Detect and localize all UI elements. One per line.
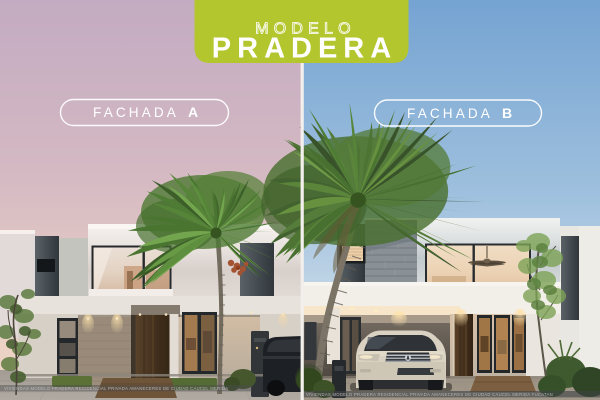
svg-text:FACHADA: FACHADA	[407, 106, 493, 121]
svg-text:B: B	[502, 105, 512, 121]
svg-text:FACHADA: FACHADA	[93, 105, 179, 120]
svg-text:PRADERA: PRADERA	[212, 33, 397, 65]
svg-text:VIVIENDAS MODELO PRADERA RESID: VIVIENDAS MODELO PRADERA RESIDENCIAL PRI…	[4, 386, 228, 391]
svg-text:A: A	[188, 104, 198, 120]
svg-text:VIVIENDAS MODELO PRADERA RESID: VIVIENDAS MODELO PRADERA RESIDENCIAL PRI…	[306, 392, 553, 397]
